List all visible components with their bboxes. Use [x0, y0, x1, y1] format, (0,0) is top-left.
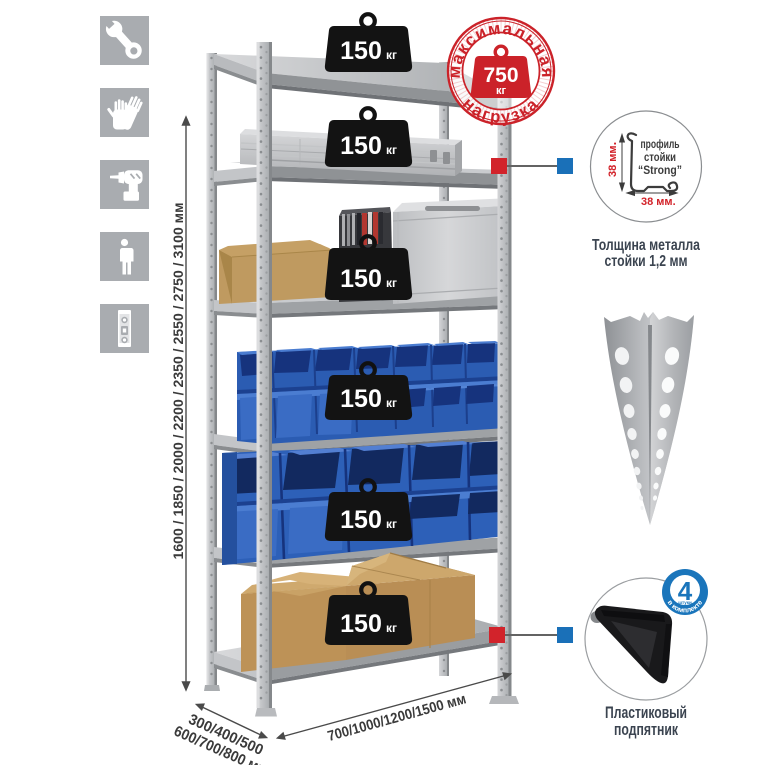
svg-text:стойки 1,2 мм: стойки 1,2 мм [605, 253, 688, 270]
svg-text:штуки: штуки [678, 600, 692, 605]
svg-text:38 мм.: 38 мм. [641, 196, 676, 208]
svg-text:150: 150 [340, 37, 382, 65]
svg-text:Пластиковый: Пластиковый [605, 704, 687, 722]
svg-text:кг: кг [386, 621, 397, 635]
svg-text:150: 150 [340, 132, 382, 160]
svg-text:профиль: профиль [641, 139, 680, 151]
svg-text:кг: кг [386, 517, 397, 531]
svg-text:кг: кг [386, 276, 397, 290]
svg-text:150: 150 [340, 265, 382, 293]
svg-text:150: 150 [340, 385, 382, 413]
svg-text:750: 750 [483, 64, 518, 87]
svg-text:1600 / 1850 / 2000 / 2200 / 23: 1600 / 1850 / 2000 / 2200 / 2350 / 2550 … [170, 203, 186, 560]
svg-text:“Strong”: “Strong” [638, 165, 682, 177]
svg-text:кг: кг [386, 396, 397, 410]
svg-text:стойки: стойки [644, 152, 676, 164]
svg-text:Толщина металла: Толщина металла [592, 237, 700, 254]
svg-text:подпятник: подпятник [614, 721, 679, 739]
svg-text:150: 150 [340, 506, 382, 534]
svg-text:кг: кг [386, 48, 397, 62]
svg-text:150: 150 [340, 610, 382, 638]
svg-text:кг: кг [496, 85, 507, 97]
svg-text:кг: кг [386, 143, 397, 157]
svg-text:38 мм.: 38 мм. [604, 142, 619, 177]
